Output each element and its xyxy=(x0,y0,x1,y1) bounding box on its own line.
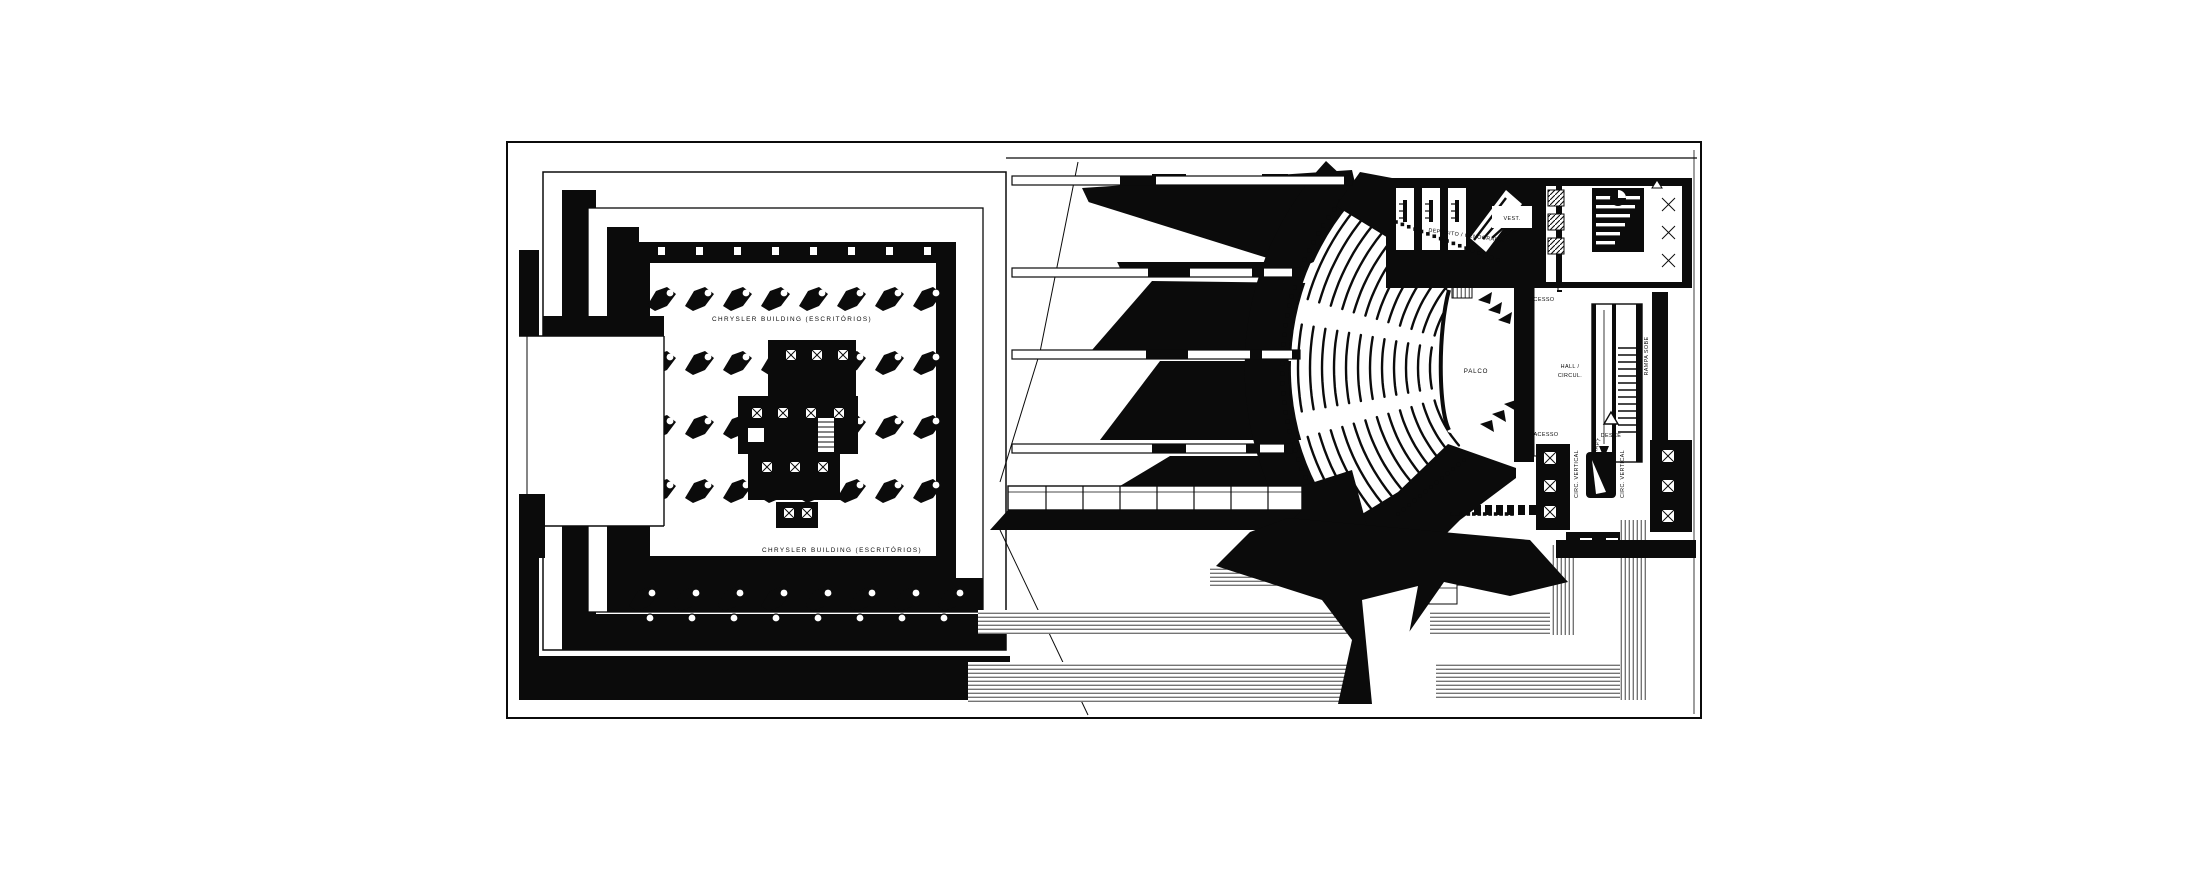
bead xyxy=(1293,448,1297,452)
bead xyxy=(1490,256,1494,260)
wall-window xyxy=(810,247,817,255)
bead xyxy=(1446,472,1450,476)
wall-window xyxy=(772,247,779,255)
bead xyxy=(1420,230,1424,234)
bead xyxy=(1439,237,1443,241)
bead xyxy=(1280,381,1284,385)
bead xyxy=(1303,258,1307,262)
parapet-block xyxy=(1452,505,1459,515)
label-hall-1: HALL / xyxy=(1561,364,1580,370)
bead xyxy=(1440,476,1444,480)
bead xyxy=(1290,439,1294,443)
wing-ground-shadow xyxy=(1556,540,1696,558)
parapet-block xyxy=(1529,505,1536,515)
ground-column xyxy=(940,614,948,622)
parapet-block xyxy=(1463,505,1470,515)
bead xyxy=(1407,503,1411,507)
wall-window xyxy=(886,247,893,255)
bead xyxy=(1462,458,1466,462)
bead xyxy=(1458,244,1462,248)
ground-column xyxy=(730,614,738,622)
room-fixture xyxy=(1429,200,1433,222)
bead xyxy=(1394,220,1398,224)
label-palco: PALCO xyxy=(1464,368,1489,375)
office-tower-plan: CHRYSLER BUILDING (ESCRITÓRIOS) CHRYSLER… xyxy=(519,172,1010,700)
bead xyxy=(1424,490,1428,494)
label-acesso-top: ACESSO xyxy=(1530,297,1555,303)
parapet-block xyxy=(1485,505,1492,515)
bead xyxy=(1418,494,1422,498)
bead xyxy=(1407,225,1411,229)
bead xyxy=(1396,512,1400,516)
bead xyxy=(1452,242,1456,246)
bead xyxy=(1445,239,1449,243)
bead xyxy=(1280,362,1284,366)
label-rampa: RAMPA SOBE xyxy=(1644,337,1650,376)
page: CHRYSLER BUILDING (ESCRITÓRIOS) CHRYSLER… xyxy=(0,0,2200,880)
label-chrysler-bottom: CHRYSLER BUILDING (ESCRITÓRIOS) xyxy=(762,545,922,554)
wall-window xyxy=(848,247,855,255)
stair-tread xyxy=(1596,223,1625,226)
bead xyxy=(1312,240,1316,244)
bead xyxy=(1464,246,1468,250)
label-circ-vertical-left: CIRC. VERTICAL xyxy=(1574,450,1580,498)
courtyard-wall-shadow xyxy=(543,316,664,336)
bead xyxy=(1287,304,1291,308)
bead xyxy=(1284,410,1288,414)
label-desce: DESCE xyxy=(1601,433,1622,439)
bead xyxy=(1321,223,1325,227)
bead xyxy=(1296,457,1300,461)
room-fixture xyxy=(1455,200,1459,222)
bead xyxy=(1288,429,1292,433)
terrace-band xyxy=(1430,612,1550,634)
bead xyxy=(1286,420,1290,424)
bead xyxy=(1457,463,1461,467)
stair-tread xyxy=(1596,214,1630,217)
bead xyxy=(1483,253,1487,257)
ground-column xyxy=(898,614,906,622)
bead xyxy=(1429,485,1433,489)
bead xyxy=(1282,333,1286,337)
floor-plan-drawing: CHRYSLER BUILDING (ESCRITÓRIOS) CHRYSLER… xyxy=(0,0,2200,880)
parapet-block xyxy=(1507,505,1514,515)
bead xyxy=(1304,475,1308,479)
terrace-band xyxy=(1436,664,1620,700)
wall-window xyxy=(658,247,665,255)
terrace-band xyxy=(978,610,1358,634)
bead xyxy=(1477,251,1481,255)
label-vest: VEST. xyxy=(1504,216,1521,222)
backstage-block: VEST. DEPÓSITO / CENOGRAFIA xyxy=(1386,178,1692,288)
bead xyxy=(1471,249,1475,253)
stair-tread xyxy=(1596,232,1620,235)
wall-window xyxy=(696,247,703,255)
bead xyxy=(1281,342,1285,346)
parapet-block xyxy=(1518,505,1525,515)
bead xyxy=(1307,249,1311,253)
label-hall-2: CIRCUL. xyxy=(1558,373,1582,379)
bead xyxy=(1280,372,1284,376)
bead xyxy=(1290,294,1294,298)
bead xyxy=(1496,258,1500,262)
bead xyxy=(1300,467,1304,471)
terrace-step-vertical xyxy=(1550,545,1576,635)
parapet-block xyxy=(1496,505,1503,515)
room-fixture xyxy=(1403,200,1407,222)
bead xyxy=(1401,223,1405,227)
core-room xyxy=(748,428,764,442)
bead xyxy=(1451,467,1455,471)
wall-window xyxy=(734,247,741,255)
bead xyxy=(1293,285,1297,289)
ground-column xyxy=(814,614,822,622)
bead xyxy=(1327,215,1331,219)
bead xyxy=(1285,313,1289,317)
bead xyxy=(1432,234,1436,238)
ground-column xyxy=(772,614,780,622)
label-circ-vertical-right: CIRC. VERTICAL xyxy=(1620,450,1626,498)
ground-column xyxy=(646,614,654,622)
bridge-shadow xyxy=(990,510,1302,530)
wall-window xyxy=(924,247,931,255)
bead xyxy=(1435,481,1439,485)
bead xyxy=(1402,508,1406,512)
bead xyxy=(1281,391,1285,395)
wing-east-wall xyxy=(1652,292,1668,440)
parapet-block xyxy=(1474,505,1481,515)
terrace-band xyxy=(968,662,1358,702)
bead xyxy=(1316,232,1320,236)
courtyard-stub xyxy=(519,494,545,558)
label-chrysler-top: CHRYSLER BUILDING (ESCRITÓRIOS) xyxy=(712,314,872,323)
bead xyxy=(1282,401,1286,405)
bead xyxy=(1413,499,1417,503)
truss-beam xyxy=(1012,176,1352,185)
bead xyxy=(1332,207,1336,211)
ground-column xyxy=(688,614,696,622)
label-acesso-bottom: ACESSO xyxy=(1534,432,1559,438)
bead xyxy=(1283,323,1287,327)
bead xyxy=(1413,227,1417,231)
stair-tread xyxy=(1596,241,1615,244)
ground-column xyxy=(856,614,864,622)
